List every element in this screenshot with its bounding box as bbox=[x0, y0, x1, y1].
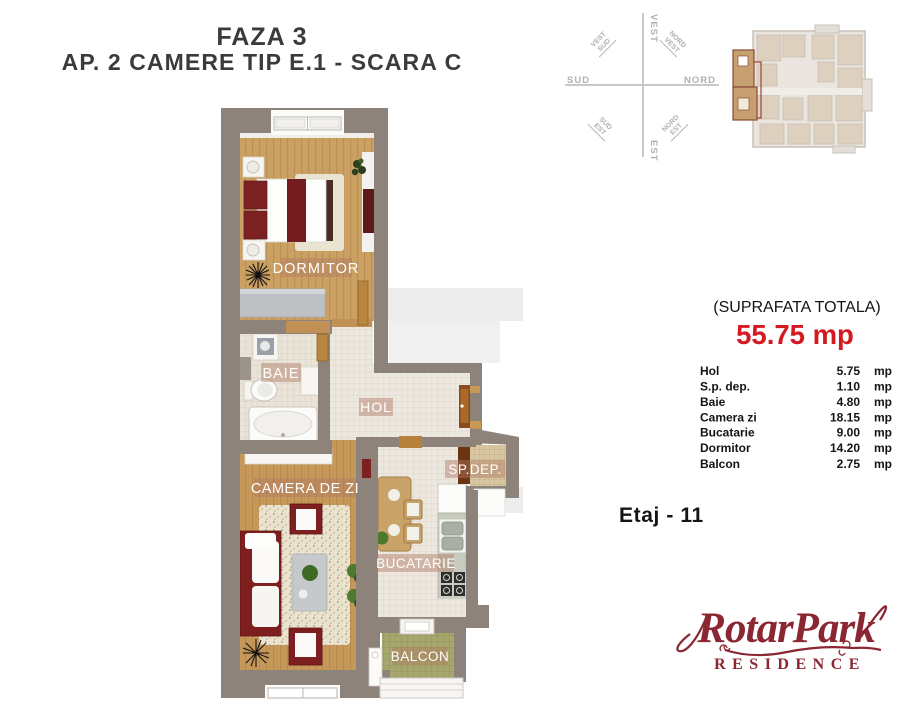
svg-text:DORMITOR: DORMITOR bbox=[273, 261, 360, 277]
svg-text:mp: mp bbox=[874, 380, 892, 394]
svg-text:CAMERA DE ZI: CAMERA DE ZI bbox=[251, 481, 359, 497]
svg-text:18.15: 18.15 bbox=[830, 411, 860, 425]
svg-text:Dormitor: Dormitor bbox=[700, 441, 751, 455]
svg-text:Balcon: Balcon bbox=[700, 457, 740, 471]
svg-text:RESIDENCE: RESIDENCE bbox=[714, 656, 866, 673]
svg-text:mp: mp bbox=[874, 364, 892, 378]
svg-text:Etaj - 11: Etaj - 11 bbox=[619, 504, 704, 527]
svg-text:Baie: Baie bbox=[700, 395, 726, 409]
svg-text:Hol: Hol bbox=[700, 364, 719, 378]
svg-text:SUD: SUD bbox=[567, 75, 590, 86]
svg-text:2.75: 2.75 bbox=[837, 457, 861, 471]
svg-text:NORD: NORD bbox=[684, 75, 716, 86]
svg-text:mp: mp bbox=[874, 441, 892, 455]
svg-text:1.10: 1.10 bbox=[837, 380, 861, 394]
svg-text:9.00: 9.00 bbox=[837, 426, 861, 440]
svg-text:5.75: 5.75 bbox=[837, 364, 861, 378]
svg-text:14.20: 14.20 bbox=[830, 441, 860, 455]
svg-text:mp: mp bbox=[874, 457, 892, 471]
svg-text:BAIE: BAIE bbox=[262, 366, 299, 382]
svg-text:VEST: VEST bbox=[648, 14, 659, 43]
svg-text:55.75 mp: 55.75 mp bbox=[736, 319, 854, 350]
svg-text:SP.DEP.: SP.DEP. bbox=[448, 462, 501, 477]
svg-text:BUCATARIE: BUCATARIE bbox=[376, 556, 456, 571]
svg-text:EST: EST bbox=[648, 140, 659, 161]
svg-text:Camera zi: Camera zi bbox=[700, 411, 757, 425]
svg-text:FAZA 3: FAZA 3 bbox=[216, 23, 307, 51]
svg-text:mp: mp bbox=[874, 426, 892, 440]
svg-text:Bucatarie: Bucatarie bbox=[700, 426, 755, 440]
svg-text:BALCON: BALCON bbox=[391, 649, 450, 664]
svg-text:S.p. dep.: S.p. dep. bbox=[700, 380, 750, 394]
svg-text:HOL: HOL bbox=[360, 399, 392, 415]
svg-text:mp: mp bbox=[874, 411, 892, 425]
svg-text:AP. 2 CAMERE TIP E.1 - SCARA C: AP. 2 CAMERE TIP E.1 - SCARA C bbox=[62, 49, 463, 75]
svg-text:(SUPRAFATA TOTALA): (SUPRAFATA TOTALA) bbox=[713, 299, 880, 316]
svg-text:mp: mp bbox=[874, 395, 892, 409]
svg-text:4.80: 4.80 bbox=[837, 395, 861, 409]
